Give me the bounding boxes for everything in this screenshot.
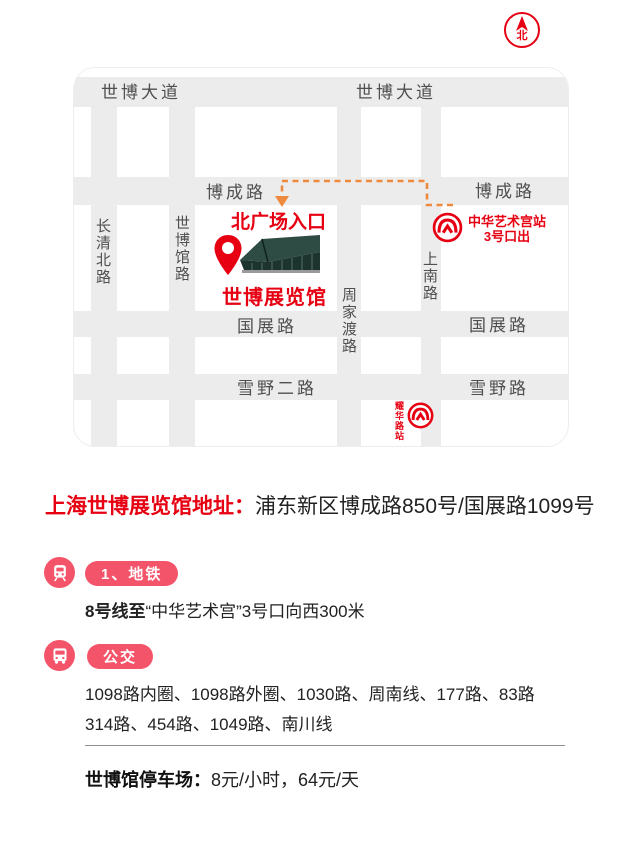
metro-route-text: 8号线至“中华艺术宫”3号口向西300米 <box>85 597 365 622</box>
route-arrow-icon <box>275 196 289 207</box>
metro-route-prefix: 8号线至 <box>85 602 145 621</box>
parking-line: 世博馆停车场：8元/小时，64元/天 <box>85 766 359 792</box>
metro-route-rest: “中华艺术宫”3号口向西300米 <box>145 602 364 621</box>
art-museum-station-label: 中华艺术宫站 3号口出 <box>446 214 568 244</box>
address-value: 浦东新区博成路850号/国展路1099号 <box>255 495 595 518</box>
yaohua-station-label: 耀华路站 <box>394 401 403 441</box>
art-museum-station-exit: 3号口出 <box>446 229 568 244</box>
compass-north-icon: 北 <box>504 12 540 48</box>
metro-train-icon <box>44 557 75 588</box>
map-card: 世博大道 世博大道 博成路 博成路 国展路 国展路 雪野二路 雪野路 长清北路 … <box>73 67 569 447</box>
art-museum-station-name: 中华艺术宫站 <box>446 214 568 229</box>
north-plaza-entrance-label: 北广场入口 <box>231 213 326 232</box>
divider <box>85 745 565 746</box>
expo-hall-label: 世博展览馆 <box>222 288 327 308</box>
compass-north-label: 北 <box>517 31 528 42</box>
parking-label: 世博馆停车场： <box>85 770 211 790</box>
metro-logo-icon <box>407 402 434 429</box>
address-label: 上海世博展览馆地址： <box>45 495 255 518</box>
expo-directions-infographic: 北 世博大道 世博大道 博成路 博成路 国展路 国展路 雪野二路 雪野路 长清北… <box>0 0 640 860</box>
bus-lines-row2: 314路、454路、1049路、南川线 <box>85 710 535 740</box>
address-line: 上海世博展览馆地址：浦东新区博成路850号/国展路1099号 <box>45 494 595 519</box>
bus-lines-text: 1098路内圈、1098路外圈、1030路、周南线、177路、83路 314路、… <box>85 680 535 740</box>
metro-badge: 1、地铁 <box>85 561 178 586</box>
parking-value: 8元/小时，64元/天 <box>211 770 359 790</box>
bus-icon <box>44 640 75 671</box>
bus-badge: 公交 <box>87 644 153 669</box>
bus-lines-row1: 1098路内圈、1098路外圈、1030路、周南线、177路、83路 <box>85 680 535 710</box>
expo-building-image <box>238 234 322 276</box>
